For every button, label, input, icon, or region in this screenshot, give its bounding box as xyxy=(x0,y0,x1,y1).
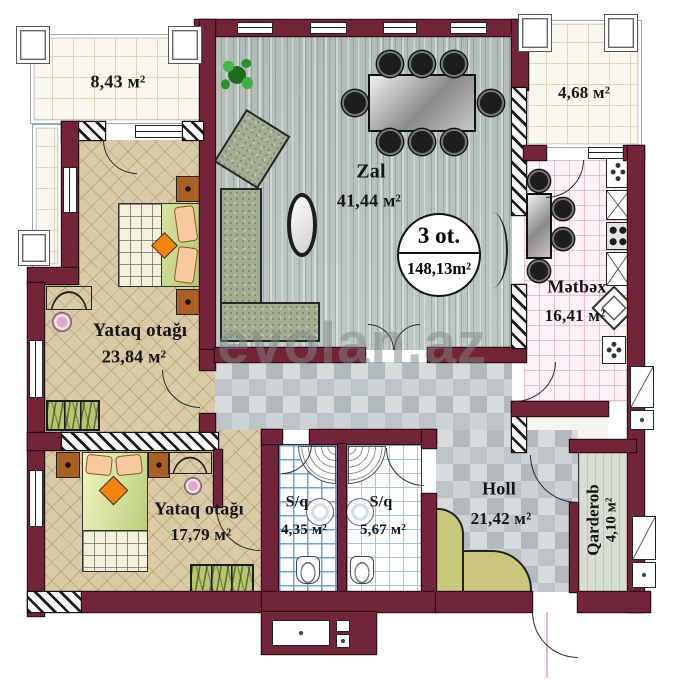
hall-area-label: 21,42 м² xyxy=(471,510,532,528)
kitchen-chair xyxy=(552,228,574,250)
wall xyxy=(422,430,436,448)
toilet xyxy=(296,556,320,584)
hatched-wall xyxy=(62,433,218,450)
hatched-wall xyxy=(28,592,82,612)
duct xyxy=(630,366,654,408)
bedroom-second-area-label: 17,79 м² xyxy=(171,526,232,544)
ventilation-shaft xyxy=(272,620,330,646)
entrance-door-arc xyxy=(532,612,578,658)
column xyxy=(604,14,638,52)
bathroom-large-name-label: S/q xyxy=(370,495,393,512)
dining-chair xyxy=(441,129,467,155)
wardrobe-second xyxy=(190,564,254,594)
wall xyxy=(262,430,278,592)
nightstand xyxy=(56,452,80,478)
wall xyxy=(570,440,636,452)
vanity-main xyxy=(46,286,92,310)
kitchen-cabinet xyxy=(606,156,630,188)
wall xyxy=(512,402,608,416)
window xyxy=(588,147,624,159)
wall xyxy=(82,592,266,612)
coffee-table xyxy=(287,193,317,257)
nightstand xyxy=(176,176,200,202)
pillow xyxy=(115,454,143,477)
badge-rooms-count: 3 ot. xyxy=(399,223,479,249)
column xyxy=(16,26,50,64)
wall xyxy=(28,268,78,284)
dining-chair xyxy=(377,129,403,155)
terrace-right-area-label: 4,68 м² xyxy=(558,84,610,102)
wall xyxy=(262,430,282,444)
fridge xyxy=(606,190,630,220)
window xyxy=(135,125,185,138)
badge-total-area: 148,13m² xyxy=(399,259,479,279)
wardrobe-main xyxy=(46,400,100,431)
bed-second-mattress xyxy=(82,530,148,572)
kitchen-area-label: 16,41 м² xyxy=(545,307,606,325)
wall xyxy=(578,592,650,612)
plant-icon xyxy=(208,46,266,104)
ventilation-shaft xyxy=(336,620,350,632)
bathroom-small-area-label: 4,35 м² xyxy=(281,523,327,539)
toilet xyxy=(350,556,374,584)
hall-console xyxy=(436,508,464,592)
watermark: evolan.az xyxy=(172,310,532,377)
wall xyxy=(262,592,436,612)
kitchen-name-label: Mətbəx xyxy=(547,278,606,297)
bedroom-second-name-label: Yataq otağı xyxy=(154,500,244,519)
vanity-second xyxy=(168,452,212,474)
wardrobe-room-area-label: 4,10 м² xyxy=(604,484,621,555)
wall xyxy=(200,20,215,350)
nightstand xyxy=(148,452,170,478)
bathroom-large-area-label: 5,67 м² xyxy=(360,523,406,539)
window xyxy=(237,22,273,34)
kitchen-cabinet xyxy=(602,336,626,364)
kitchen-chair xyxy=(552,198,574,220)
duct xyxy=(632,516,656,560)
dining-chair xyxy=(409,51,435,77)
ventilation-shaft xyxy=(336,634,350,648)
bathroom-small-name-label: S/q xyxy=(286,495,309,512)
wall xyxy=(28,433,62,450)
vanity-stool xyxy=(52,312,72,332)
column xyxy=(518,14,552,52)
window xyxy=(63,167,77,213)
wall xyxy=(570,503,578,592)
dining-table xyxy=(368,74,476,132)
wall xyxy=(524,146,546,160)
dining-chair xyxy=(342,90,368,116)
hatched-wall xyxy=(183,122,203,140)
wall xyxy=(310,430,436,444)
hall-name-label: Holl xyxy=(482,480,516,499)
wall xyxy=(436,592,532,612)
window xyxy=(29,340,43,398)
pillow xyxy=(85,454,113,477)
vanity-stool xyxy=(184,477,202,495)
wall xyxy=(422,494,436,592)
wall xyxy=(338,444,346,592)
wardrobe-room-label: Qarderob 4,10 м² xyxy=(584,484,621,555)
dining-chair xyxy=(409,129,435,155)
kitchen-appliance xyxy=(606,252,630,286)
dining-chair xyxy=(377,51,403,77)
duct xyxy=(632,562,656,588)
stove xyxy=(606,222,630,250)
dining-chair xyxy=(441,51,467,77)
badge-divider xyxy=(399,252,479,254)
column xyxy=(18,230,50,266)
living-name-label: Zal xyxy=(356,162,386,183)
living-area-label: 41,44 м² xyxy=(337,192,401,211)
bedroom-main-area-label: 23,84 м² xyxy=(102,348,166,367)
apartment-badge: 3 ot. 148,13m² xyxy=(397,213,481,297)
column xyxy=(168,26,202,64)
wardrobe-room-name-label: Qarderob xyxy=(584,484,604,555)
terrace-left-area-label: 8,43 м² xyxy=(90,73,145,92)
window xyxy=(29,470,43,527)
dining-chair xyxy=(478,90,504,116)
floor-plan: 8,43 м² 4,68 м² Zal 41,44 м² Mətbəx 16,4… xyxy=(0,0,680,680)
wall xyxy=(200,414,215,433)
window xyxy=(450,22,487,34)
window xyxy=(383,22,417,34)
window xyxy=(310,22,347,34)
duct xyxy=(630,410,654,430)
kitchen-table xyxy=(526,193,552,259)
